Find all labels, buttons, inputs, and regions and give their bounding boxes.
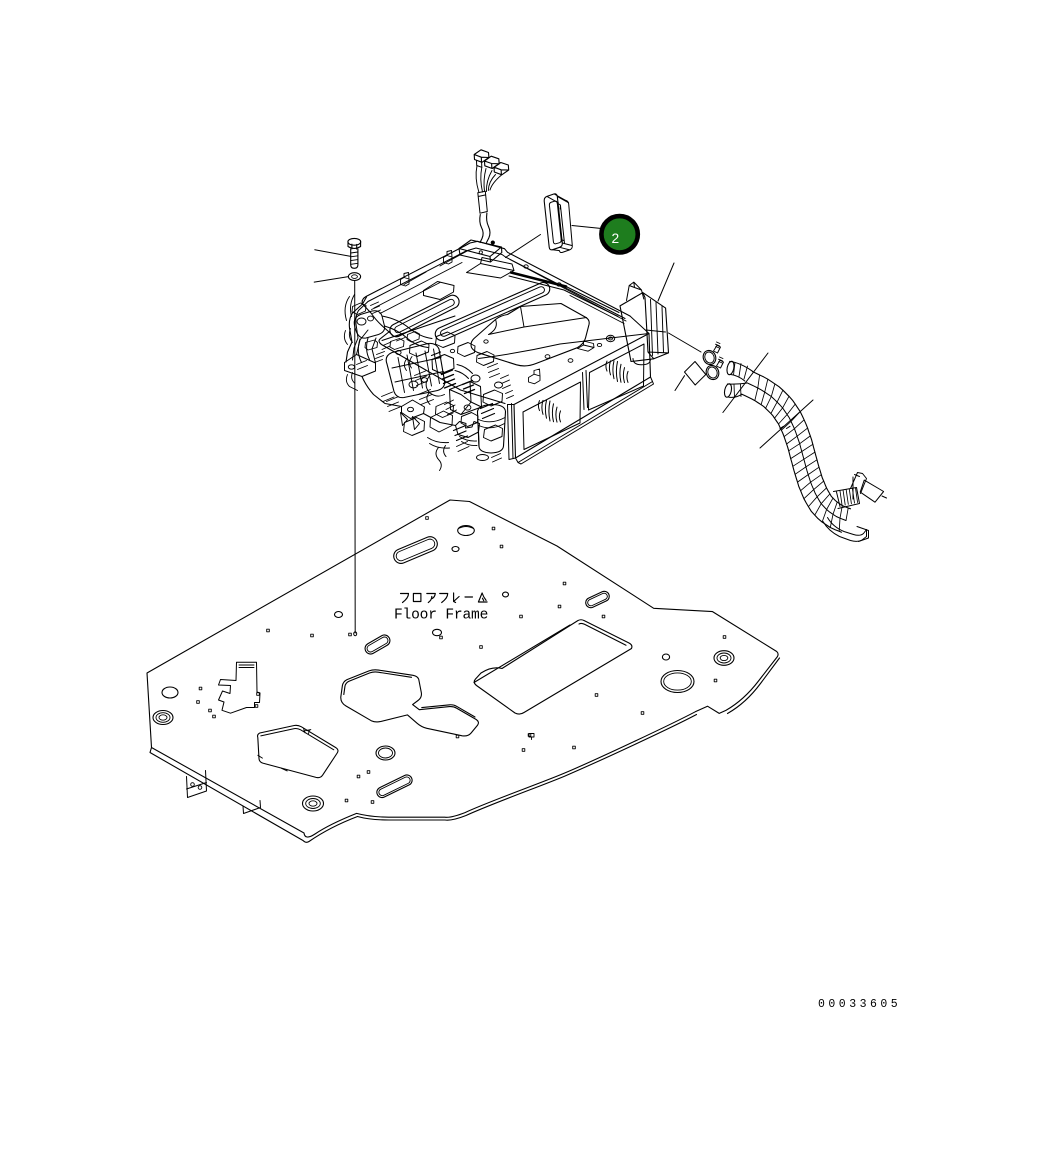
svg-text:00033605: 00033605 [818, 998, 901, 1011]
svg-text:Floor Frame: Floor Frame [394, 608, 488, 624]
svg-text:2: 2 [612, 231, 620, 246]
